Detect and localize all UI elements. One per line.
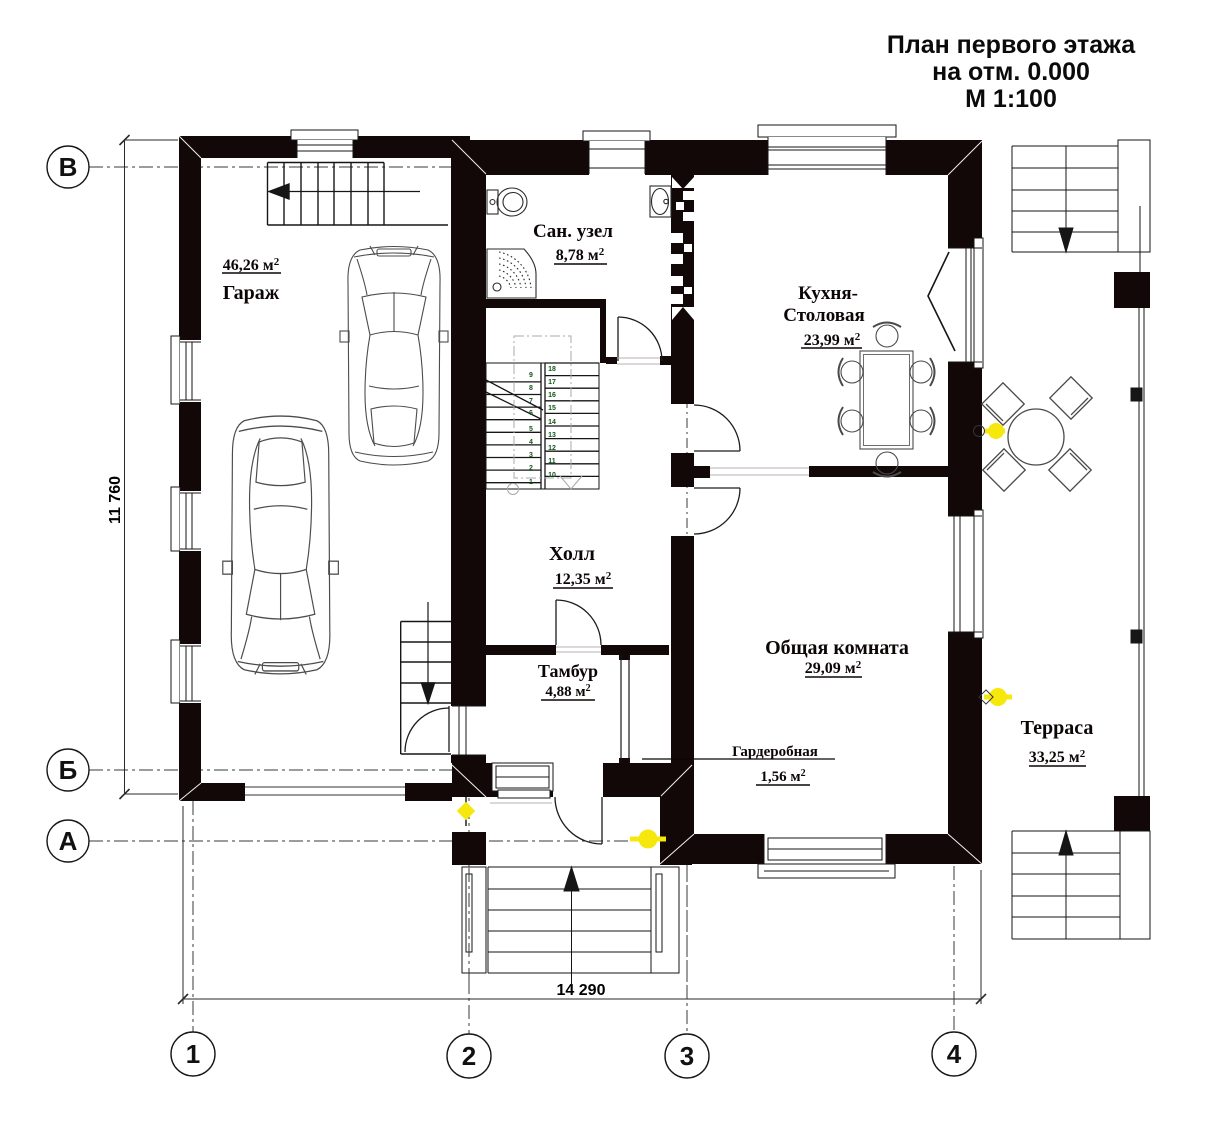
svg-text:Тамбур: Тамбур <box>538 661 598 681</box>
svg-text:3: 3 <box>529 452 533 459</box>
svg-text:15: 15 <box>548 405 556 412</box>
svg-text:4: 4 <box>947 1039 962 1069</box>
svg-text:7: 7 <box>529 398 533 405</box>
svg-text:4,88 м2: 4,88 м2 <box>545 683 590 700</box>
svg-text:План первого этажа: План первого этажа <box>887 31 1136 59</box>
svg-text:23,99 м2: 23,99 м2 <box>804 331 861 349</box>
svg-text:4: 4 <box>529 439 533 446</box>
svg-text:18: 18 <box>548 366 556 373</box>
svg-text:14 290: 14 290 <box>557 982 606 999</box>
svg-text:1: 1 <box>529 479 533 486</box>
svg-text:Кухня-: Кухня- <box>798 283 858 304</box>
svg-text:2: 2 <box>529 465 533 472</box>
svg-text:12,35 м2: 12,35 м2 <box>555 570 612 588</box>
svg-text:10: 10 <box>548 472 556 479</box>
svg-text:12: 12 <box>548 445 556 452</box>
svg-text:16: 16 <box>548 392 556 399</box>
svg-text:1: 1 <box>186 1039 200 1069</box>
svg-text:М 1:100: М 1:100 <box>965 85 1057 113</box>
svg-text:Сан. узел: Сан. узел <box>533 221 613 242</box>
svg-text:А: А <box>59 826 78 856</box>
svg-text:8,78 м2: 8,78 м2 <box>556 246 605 264</box>
svg-text:Гараж: Гараж <box>223 282 280 304</box>
svg-text:13: 13 <box>548 432 556 439</box>
svg-text:46,26 м2: 46,26 м2 <box>223 256 280 274</box>
svg-text:11: 11 <box>548 458 556 465</box>
svg-text:Терраса: Терраса <box>1021 717 1094 739</box>
svg-text:Холл: Холл <box>549 543 595 565</box>
svg-text:В: В <box>59 152 78 182</box>
svg-text:Общая комната: Общая комната <box>765 637 909 659</box>
svg-text:29,09 м2: 29,09 м2 <box>805 659 862 677</box>
svg-text:9: 9 <box>529 372 533 379</box>
svg-text:2: 2 <box>462 1041 476 1071</box>
svg-text:14: 14 <box>548 419 556 426</box>
svg-text:1,56 м2: 1,56 м2 <box>760 768 805 785</box>
svg-text:17: 17 <box>548 379 556 386</box>
svg-text:3: 3 <box>680 1041 694 1071</box>
svg-text:6: 6 <box>529 410 533 417</box>
svg-text:8: 8 <box>529 385 533 392</box>
svg-text:на отм. 0.000: на отм. 0.000 <box>932 58 1090 86</box>
svg-text:5: 5 <box>529 426 533 433</box>
svg-text:33,25 м2: 33,25 м2 <box>1029 748 1086 766</box>
svg-text:Столовая: Столовая <box>783 305 865 326</box>
svg-text:Б: Б <box>59 755 78 785</box>
svg-text:11 760: 11 760 <box>107 476 124 524</box>
svg-text:Гардеробная: Гардеробная <box>732 744 818 760</box>
